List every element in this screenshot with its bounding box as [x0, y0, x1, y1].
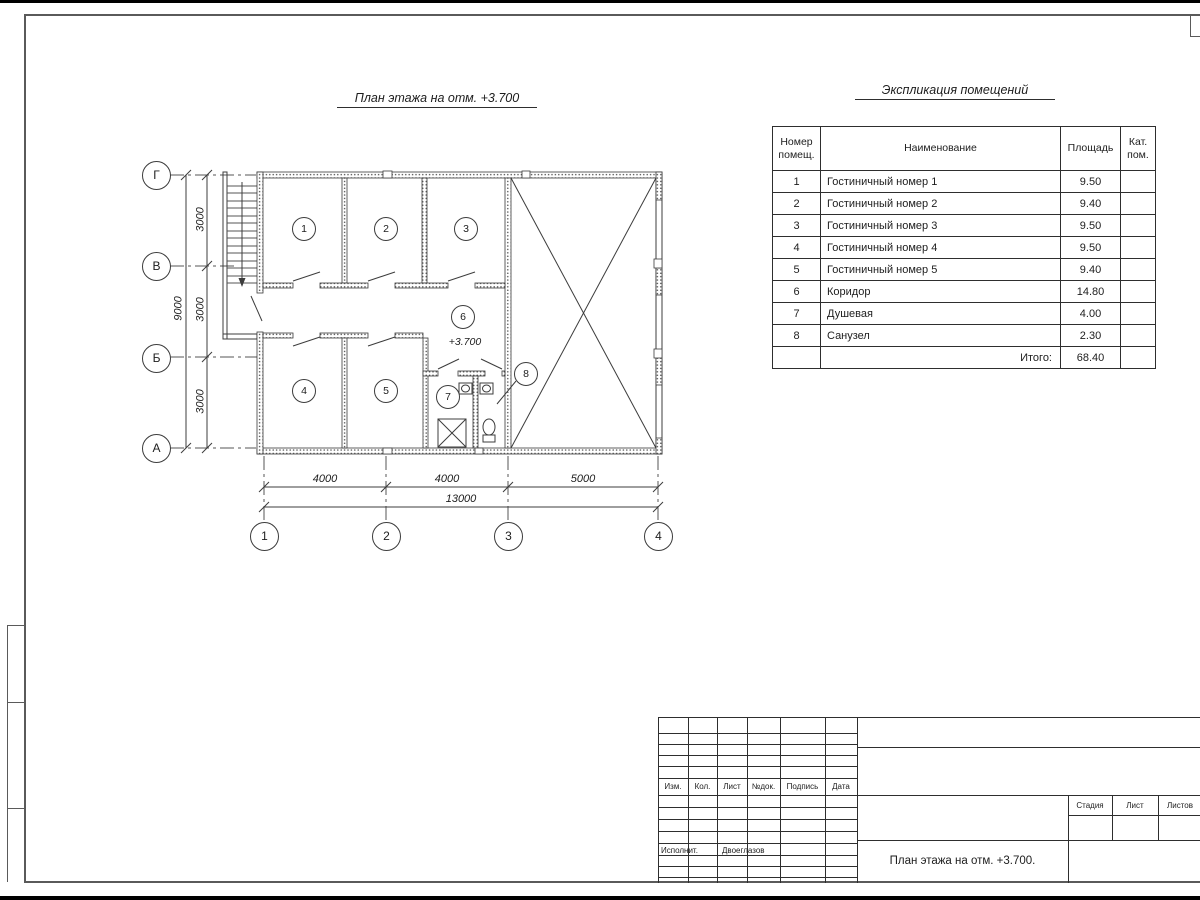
- schedule-header-area: Площадь: [1061, 127, 1121, 171]
- dim-4000-2: 4000: [417, 473, 477, 486]
- toilet-bowl: [483, 419, 495, 435]
- table-row: 8 Санузел 2.30: [773, 325, 1156, 347]
- room-bubble-4: 4: [292, 379, 316, 403]
- titleblock-col-data: Дата: [825, 782, 857, 791]
- axis-bubble-col-1: 1: [250, 522, 279, 551]
- table-row: 4 Гостиничный номер 4 9.50: [773, 237, 1156, 259]
- schedule-total-label: Итого:: [821, 347, 1061, 369]
- wall-bottom: [257, 448, 662, 454]
- dim-9000: 9000: [173, 284, 186, 334]
- schedule-total-value: 68.40: [1061, 347, 1121, 369]
- room-bubble-1: 1: [292, 217, 316, 241]
- table-row: 1 Гостиничный номер 1 9.50: [773, 171, 1156, 193]
- titleblock-stage-label: Стадия: [1068, 801, 1112, 810]
- schedule-header-number: Номер помещ.: [773, 127, 821, 171]
- dim-4000-1: 4000: [295, 473, 355, 486]
- room-bubble-5: 5: [374, 379, 398, 403]
- axis-bubble-col-4: 4: [644, 522, 673, 551]
- void-area-cross: [511, 178, 656, 448]
- axis-lines: [170, 175, 658, 521]
- table-row: 2 Гостиничный номер 2 9.40: [773, 193, 1156, 215]
- room-schedule-table: Номер помещ. Наименование Площадь Кат. п…: [772, 126, 1156, 369]
- titleblock-col-podpis: Подпись: [780, 782, 825, 791]
- schedule-header-name: Наименование: [821, 127, 1061, 171]
- dim-5000: 5000: [553, 473, 613, 486]
- room-bubble-3: 3: [454, 217, 478, 241]
- wall-left-lower: [257, 332, 263, 454]
- axis-bubble-col-2: 2: [372, 522, 401, 551]
- axis-bubble-row-g: Г: [142, 161, 171, 190]
- stair-annex-walls: [223, 172, 257, 339]
- titleblock-executor-label: Исполнит.: [661, 846, 698, 855]
- table-row: 6 Коридор 14.80: [773, 281, 1156, 303]
- table-row: 7 Душевая 4.00: [773, 303, 1156, 325]
- room-bubble-7: 7: [436, 385, 460, 409]
- table-row: 3 Гостиничный номер 3 9.50: [773, 215, 1156, 237]
- wall-axis-3: [505, 178, 511, 448]
- titleblock-executor-name: Двоеглазов: [722, 846, 765, 855]
- axis-bubble-row-b: Б: [142, 344, 171, 373]
- titleblock-col-izm: Изм.: [658, 782, 688, 791]
- wall-left-upper: [257, 172, 263, 293]
- plan-title: План этажа на отм. +3.700: [337, 91, 537, 108]
- stair-direction-arrow: [239, 182, 246, 287]
- toilet-tank: [483, 435, 495, 442]
- room-bubble-2: 2: [374, 217, 398, 241]
- schedule-title: Экспликация помещений: [855, 83, 1055, 100]
- drawing-sheet: План этажа на отм. +3.700 Экспликация по…: [0, 0, 1200, 900]
- dim-3000-2: 3000: [195, 285, 208, 335]
- titleblock-col-kol: Кол.: [688, 782, 717, 791]
- wall-top: [257, 172, 662, 178]
- schedule-header-cat: Кат. пом.: [1121, 127, 1156, 171]
- dim-13000: 13000: [431, 493, 491, 506]
- axis-bubble-row-a: А: [142, 434, 171, 463]
- table-total-row: Итого: 68.40: [773, 347, 1156, 369]
- titleblock-col-list: Лист: [717, 782, 747, 791]
- room-bubble-8: 8: [514, 362, 538, 386]
- axis-bubble-col-3: 3: [494, 522, 523, 551]
- titleblock-col-ndok: №док.: [747, 782, 780, 791]
- axis-bubble-row-v: В: [142, 252, 171, 281]
- elevation-label: +3.700: [440, 336, 490, 348]
- titleblock-doc-title: План этажа на отм. +3.700.: [857, 855, 1068, 867]
- titleblock-sheet-label: Лист: [1112, 801, 1158, 810]
- table-row: 5 Гостиничный номер 5 9.40: [773, 259, 1156, 281]
- dim-3000-1: 3000: [195, 195, 208, 245]
- room-bubble-6: 6: [451, 305, 475, 329]
- dim-3000-3: 3000: [195, 377, 208, 427]
- titleblock-sheets-label: Листов: [1158, 801, 1200, 810]
- right-wall-window-line: [656, 172, 662, 454]
